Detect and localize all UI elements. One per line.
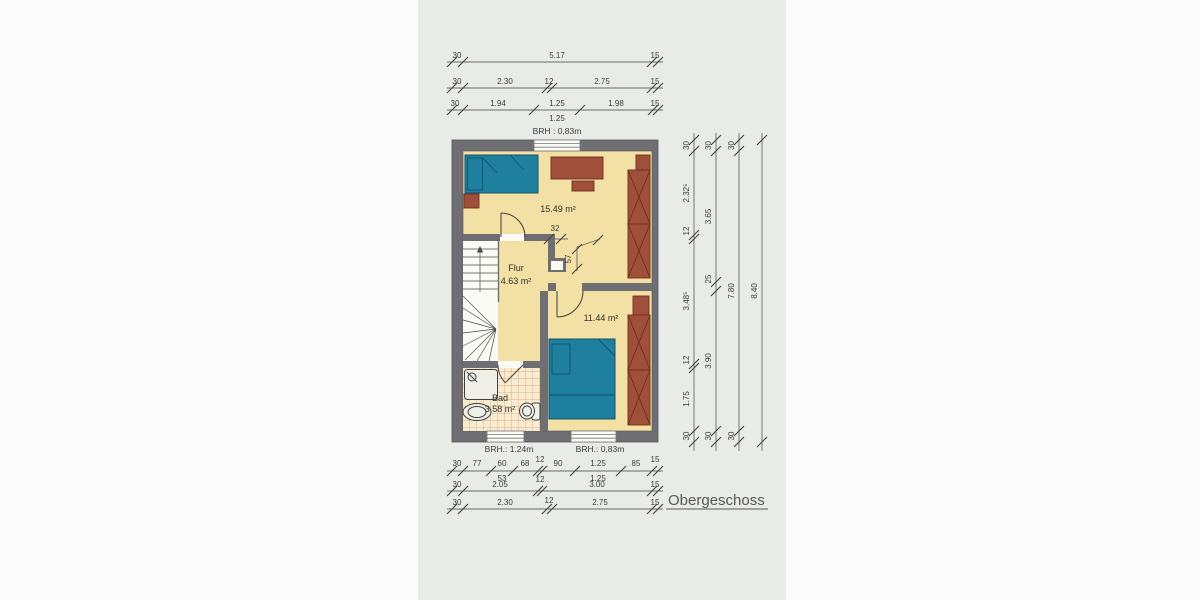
svg-text:2.32⁵: 2.32⁵ (682, 184, 691, 203)
svg-text:1.98: 1.98 (608, 99, 624, 108)
svg-text:2.75: 2.75 (594, 77, 610, 86)
brh-top-label: BRH : 0,83m (533, 126, 582, 136)
plan-title: Obergeschoss (666, 492, 768, 509)
svg-text:3.65: 3.65 (704, 208, 713, 224)
svg-text:1.25: 1.25 (549, 99, 565, 108)
brh-bath-label: BRH.: 1.24m (485, 444, 534, 454)
svg-text:12: 12 (545, 77, 554, 86)
svg-text:77: 77 (473, 459, 482, 468)
svg-text:30: 30 (704, 141, 713, 150)
svg-text:1.25: 1.25 (590, 459, 606, 468)
svg-text:57: 57 (564, 254, 573, 263)
floor-plan-canvas: 15.49 m² Flur 4.63 m² 11.44 m² Bad 3.58 … (0, 0, 1200, 600)
svg-text:60: 60 (498, 459, 507, 468)
svg-text:30: 30 (453, 459, 462, 468)
floor-plan: 15.49 m² Flur 4.63 m² 11.44 m² Bad 3.58 … (452, 126, 658, 454)
large-bedroom-area-label: 15.49 m² (540, 204, 576, 214)
svg-text:3.00: 3.00 (589, 480, 605, 489)
svg-text:15: 15 (651, 51, 660, 60)
hall-name-label: Flur (508, 263, 524, 273)
svg-text:90: 90 (554, 459, 563, 468)
svg-text:1.94: 1.94 (490, 99, 506, 108)
svg-text:12: 12 (536, 455, 545, 464)
svg-text:12: 12 (536, 475, 545, 484)
svg-text:30: 30 (704, 431, 713, 440)
brh-bedroom-label: BRH.: 0,83m (576, 444, 625, 454)
svg-text:3.48⁵: 3.48⁵ (682, 292, 691, 311)
svg-text:7.80: 7.80 (727, 283, 736, 299)
bath-name-label: Bad (492, 393, 508, 403)
window-top (534, 140, 580, 151)
svg-text:5.17: 5.17 (549, 51, 565, 60)
svg-text:12: 12 (545, 496, 554, 505)
svg-text:1.75: 1.75 (682, 391, 691, 407)
svg-text:30: 30 (727, 431, 736, 440)
svg-text:15: 15 (651, 99, 660, 108)
svg-text:8.40: 8.40 (750, 283, 759, 299)
dresser (551, 157, 603, 179)
svg-text:15: 15 (651, 498, 660, 507)
svg-text:30: 30 (453, 480, 462, 489)
svg-text:12: 12 (682, 355, 691, 364)
window-bath (487, 431, 524, 442)
svg-text:Obergeschoss: Obergeschoss (668, 492, 765, 509)
svg-text:32: 32 (551, 224, 560, 233)
svg-text:25: 25 (704, 274, 713, 283)
svg-text:30: 30 (453, 51, 462, 60)
svg-text:2.30: 2.30 (497, 77, 513, 86)
nightstand (464, 194, 479, 208)
svg-text:68: 68 (521, 459, 530, 468)
wardrobe-small-bedroom (628, 296, 650, 425)
svg-text:2.05: 2.05 (492, 480, 508, 489)
svg-text:15: 15 (651, 77, 660, 86)
hall-area-label: 4.63 m² (501, 276, 532, 286)
bath-area-label: 3.58 m² (485, 404, 516, 414)
svg-text:30: 30 (451, 99, 460, 108)
svg-text:3.90: 3.90 (704, 353, 713, 369)
svg-text:2.30: 2.30 (497, 498, 513, 507)
toilet (520, 403, 541, 420)
svg-text:15: 15 (651, 455, 660, 464)
small-bedroom-area-label: 11.44 m² (584, 313, 619, 323)
svg-text:30: 30 (682, 431, 691, 440)
svg-text:1.25: 1.25 (549, 114, 565, 123)
svg-text:30: 30 (453, 77, 462, 86)
svg-text:15: 15 (651, 480, 660, 489)
svg-text:30: 30 (682, 141, 691, 150)
svg-text:12: 12 (682, 226, 691, 235)
bed-small-bedroom (549, 339, 615, 419)
svg-text:85: 85 (632, 459, 641, 468)
svg-text:30: 30 (453, 498, 462, 507)
svg-text:30: 30 (727, 141, 736, 150)
svg-text:2.75: 2.75 (592, 498, 608, 507)
window-bedroom (571, 431, 616, 442)
bed-large-bedroom (465, 155, 538, 193)
wardrobe-large-bedroom (628, 155, 650, 278)
side-table (572, 181, 594, 191)
